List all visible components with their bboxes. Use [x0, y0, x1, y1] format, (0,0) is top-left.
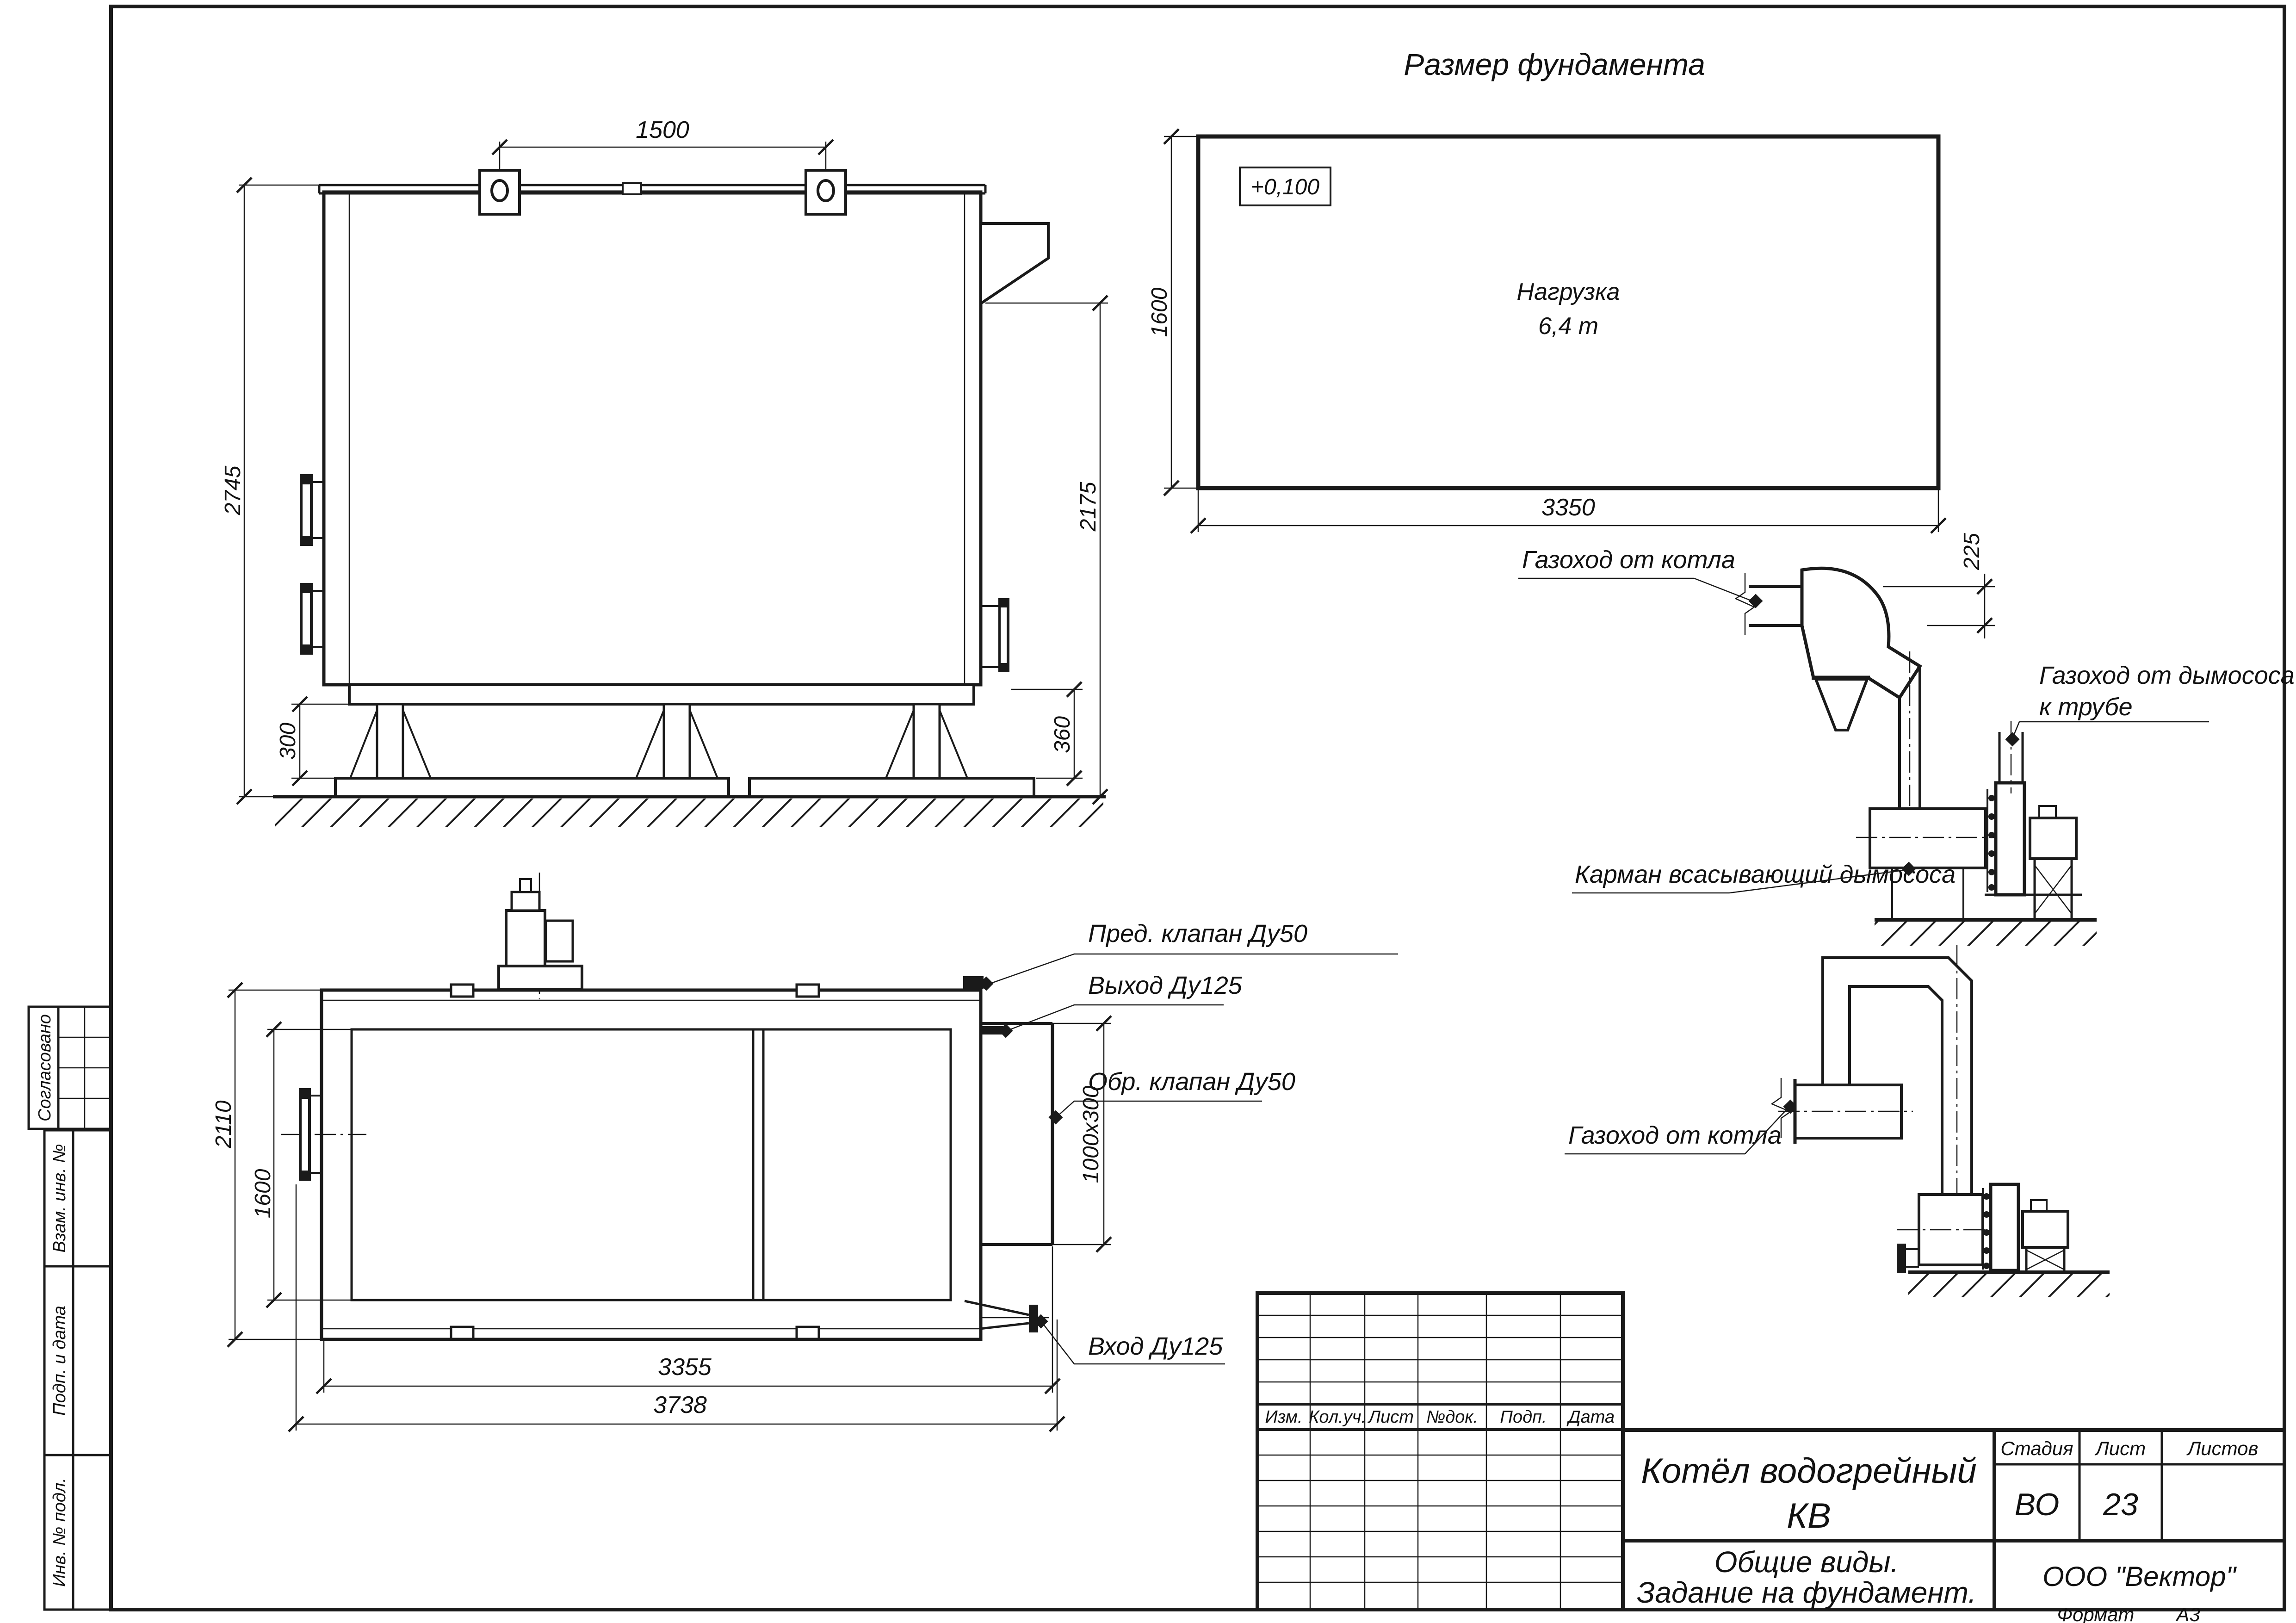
company-name: ООО "Вектор" [2042, 1561, 2237, 1592]
outlet-label: Выход Ду125 [1088, 972, 1243, 999]
rev-header-koluch: Кол.уч. [1309, 1407, 1366, 1427]
suction-pocket [1870, 809, 1986, 868]
elevation-mark: +0,100 [1251, 175, 1319, 199]
rev-header-list: Лист [1367, 1407, 1414, 1427]
flue-lower-from-boiler-label: Газоход от котла [1568, 1121, 1782, 1149]
flue-upper-to-stack-label-2: к трубе [2039, 693, 2133, 721]
sheet-value: 23 [2103, 1487, 2138, 1522]
flue-upper-pocket-label: Карман всасывающий дымососа [1575, 861, 1956, 888]
safety-valve-label: Пред. клапан Ду50 [1088, 920, 1307, 948]
dim-300-label: 300 [276, 723, 300, 760]
dim-plan-1600-label: 1600 [251, 1169, 275, 1218]
stage-value: ВО [2015, 1487, 2060, 1522]
product-name-1: Котёл водогрейный [1641, 1451, 1976, 1491]
lifting-lug-right [806, 170, 846, 214]
flue-upper-to-stack-label-1: Газоход от дымососа [2039, 662, 2295, 689]
check-valve-label: Обр. клапан Ду50 [1088, 1068, 1295, 1096]
format-value: А3 [2175, 1604, 2200, 1623]
fan-motor [2030, 818, 2076, 859]
dim-360-label: 360 [1050, 716, 1075, 753]
rev-header-izm: Изм. [1265, 1407, 1302, 1427]
rev-header-ndok: №док. [1426, 1407, 1478, 1427]
dim-foundation-1600-label: 1600 [1147, 287, 1172, 337]
foundation-title: Размер фундамента [1404, 47, 1705, 81]
load-label-2: 6,4 т [1538, 313, 1598, 340]
lifting-lug-left [480, 170, 520, 214]
stamp-replace-inv-label: Взам. инв. № [50, 1144, 69, 1252]
sheet-label: Лист [2094, 1437, 2146, 1459]
stage-label: Стадия [2000, 1437, 2073, 1459]
ground-hatch-upper-flue [1875, 922, 2097, 946]
sheets-label: Листов [2186, 1437, 2259, 1459]
dim-1000x300-label: 1000х300 [1079, 1085, 1103, 1183]
dim-3738-label: 3738 [653, 1392, 707, 1419]
ground-hatch-lower-flue [1908, 1274, 2110, 1297]
rev-header-podp: Подп. [1500, 1407, 1547, 1427]
top-valve-stub [623, 183, 641, 194]
boiler-body [324, 192, 981, 685]
dim-225-label: 225 [1960, 533, 1984, 570]
stamp-sign-date-label: Подп. и дата [50, 1306, 69, 1416]
load-label-1: Нагрузка [1517, 279, 1620, 305]
rev-header-data: Дата [1566, 1407, 1615, 1427]
dim-2110-label: 2110 [211, 1100, 236, 1149]
flue-lower-motor [2023, 1211, 2068, 1247]
inlet-label: Вход Ду125 [1088, 1332, 1223, 1360]
stamp-approved-label: Согласовано [35, 1014, 55, 1121]
dim-1500-label: 1500 [636, 117, 689, 143]
flue-lower-fan-casing [1991, 1184, 2018, 1270]
doc-type-2: Задание на фундамент. [1637, 1576, 1976, 1609]
dim-2745-label: 2745 [221, 465, 245, 515]
plan-outline [322, 990, 981, 1339]
fan-casing [1996, 783, 2024, 895]
product-name-2: КВ [1787, 1496, 1831, 1536]
flue-upper-from-boiler-label: Газоход от котла [1522, 546, 1735, 574]
dim-2175-label: 2175 [1076, 482, 1101, 532]
format-label: Формат [2057, 1604, 2135, 1623]
dim-3355-label: 3355 [658, 1354, 712, 1381]
ground-hatch [275, 799, 1103, 827]
stamp-inv-orig-label: Инв. № подл. [50, 1478, 69, 1587]
dim-foundation-3350-label: 3350 [1541, 494, 1595, 521]
engineering-drawing-sheet: Согласовано Взам. инв. № Подп. и дата Ин… [0, 0, 2296, 1623]
doc-type-1: Общие виды. [1714, 1545, 1899, 1579]
